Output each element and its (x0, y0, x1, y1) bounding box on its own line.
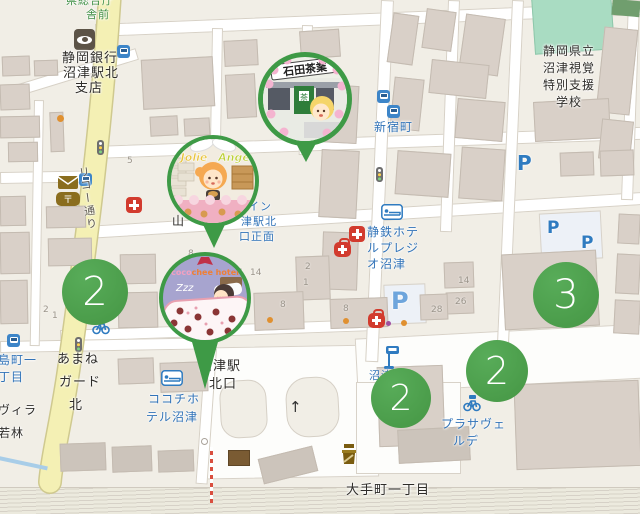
house-number: 2 (305, 262, 311, 272)
cluster-marker[interactable]: 2 (371, 368, 431, 428)
cluster-marker[interactable]: 3 (533, 262, 599, 328)
building (112, 445, 153, 472)
svg-text:茶: 茶 (300, 92, 308, 102)
pharmacy-icon (368, 313, 385, 328)
building (615, 253, 640, 294)
hotel-presio-label: ルプレジ (367, 242, 419, 254)
building (2, 56, 31, 77)
house-number: 2 (43, 305, 49, 315)
poi-dot (201, 438, 208, 445)
bank-icon (74, 29, 95, 50)
building (0, 196, 26, 226)
traffic-signal-icon (75, 337, 82, 352)
amane-guard-label: 北 (69, 399, 83, 412)
plaza-verde-building (514, 380, 640, 470)
map-canvas[interactable]: ↑ (0, 0, 640, 514)
poi-dot (401, 320, 407, 326)
poi-dot (57, 115, 64, 122)
house-number: 1 (303, 278, 309, 288)
house-number: 26 (455, 297, 466, 307)
svg-text:〒: 〒 (63, 195, 73, 206)
plaza-verde-label: プラサヴェ (441, 418, 506, 430)
house-number: 5 (127, 156, 133, 166)
green-patch (611, 0, 640, 17)
clinic-icon (349, 226, 365, 242)
cocochi-hotel-label: テル沼津 (146, 411, 198, 423)
cluster-marker[interactable]: 2 (466, 340, 528, 402)
villa-label: 若林 (0, 427, 24, 439)
building (600, 149, 635, 176)
bus-stop-label: 県総合庁 (66, 0, 114, 6)
traffic-signal-icon (376, 167, 383, 182)
building (613, 299, 640, 334)
hotel-presio-label: オ沼津 (367, 258, 406, 270)
school-label: 特別支援 (543, 79, 595, 91)
clinic-icon (126, 197, 142, 213)
building (225, 73, 257, 119)
building (141, 56, 216, 110)
shrine-monument-icon (338, 442, 360, 466)
building (0, 83, 30, 110)
map-pin-cocochee-hotel[interactable]: cocochee hotel Zzz (158, 251, 253, 391)
sleep-zzz-text: Zzz (175, 283, 194, 294)
svg-text:cocochee hotel: cocochee hotel (171, 268, 239, 277)
building (395, 150, 452, 198)
amane-guard-label: あまね (57, 353, 99, 366)
house-number: 8 (280, 300, 286, 310)
building (158, 449, 195, 472)
parking-icon: P (547, 220, 559, 237)
svg-text:Jolie: Jolie (179, 151, 208, 164)
otemachi-label: 大手町一丁目 (346, 484, 430, 497)
building (560, 151, 595, 176)
building (228, 450, 250, 466)
bus-icon (387, 105, 400, 118)
building (421, 8, 456, 52)
pharmacy-icon (334, 242, 351, 257)
cluster-marker[interactable]: 2 (62, 259, 128, 325)
amane-guard-label: ガード (59, 376, 101, 389)
house-number: 8 (343, 304, 349, 314)
house-number: 14 (458, 276, 469, 286)
traffic-signal-icon (97, 140, 104, 155)
villa-label: ヴィラ (0, 404, 37, 416)
building (458, 147, 506, 202)
building (34, 60, 59, 77)
building (8, 142, 38, 163)
school-label: 沼津視覚 (543, 62, 595, 74)
building (428, 59, 489, 99)
post-office-icon: 〒 (56, 176, 80, 208)
parking-icon: P (517, 153, 532, 173)
building (46, 206, 86, 229)
fence-line (210, 447, 213, 503)
building (253, 291, 304, 331)
parking-icon: P (581, 235, 593, 252)
plaza-verde-label: ルデ (453, 435, 479, 447)
house-number: 28 (431, 305, 442, 315)
bus-icon (377, 90, 390, 103)
bus-icon (7, 334, 20, 347)
parking-icon: P (391, 289, 409, 313)
poi-dot (386, 321, 391, 326)
bicycle-parking-icon (463, 395, 481, 412)
hotel-bed-icon (381, 204, 403, 220)
poi-dot (343, 318, 349, 324)
shimacho-label: 島町一 (0, 354, 37, 366)
shinjukucho-label: 新宿町 (374, 121, 413, 133)
map-pin-jolie-ange[interactable]: Jolie Ange (166, 134, 261, 252)
building (454, 98, 505, 142)
building (60, 442, 107, 472)
map-pin-ishida-tea-shop[interactable]: 茶 石田茶業 (254, 48, 357, 166)
building (118, 357, 155, 384)
building (0, 116, 40, 139)
building (0, 232, 30, 275)
cocochi-hotel-label: ココチホ (148, 393, 200, 405)
bank-label: 支店 (75, 82, 103, 95)
house-number: 1 (52, 311, 58, 321)
bus-stop-icon (380, 346, 400, 370)
transit-icon (117, 45, 130, 58)
school-label: 学校 (556, 96, 582, 108)
building (617, 213, 640, 244)
one-way-arrow-icon: ↑ (289, 398, 302, 416)
bank-label: 静岡銀行 (62, 52, 118, 65)
building (0, 280, 28, 324)
shimacho-label: 丁目 (0, 371, 24, 383)
bank-label: 沼津駅北 (63, 67, 119, 80)
hotel-presio-label: 静鉄ホテ (367, 226, 419, 238)
poi-dot (267, 317, 273, 323)
school-label: 静岡県立 (543, 45, 595, 57)
bus-stop-label: 舎前 (86, 9, 110, 20)
